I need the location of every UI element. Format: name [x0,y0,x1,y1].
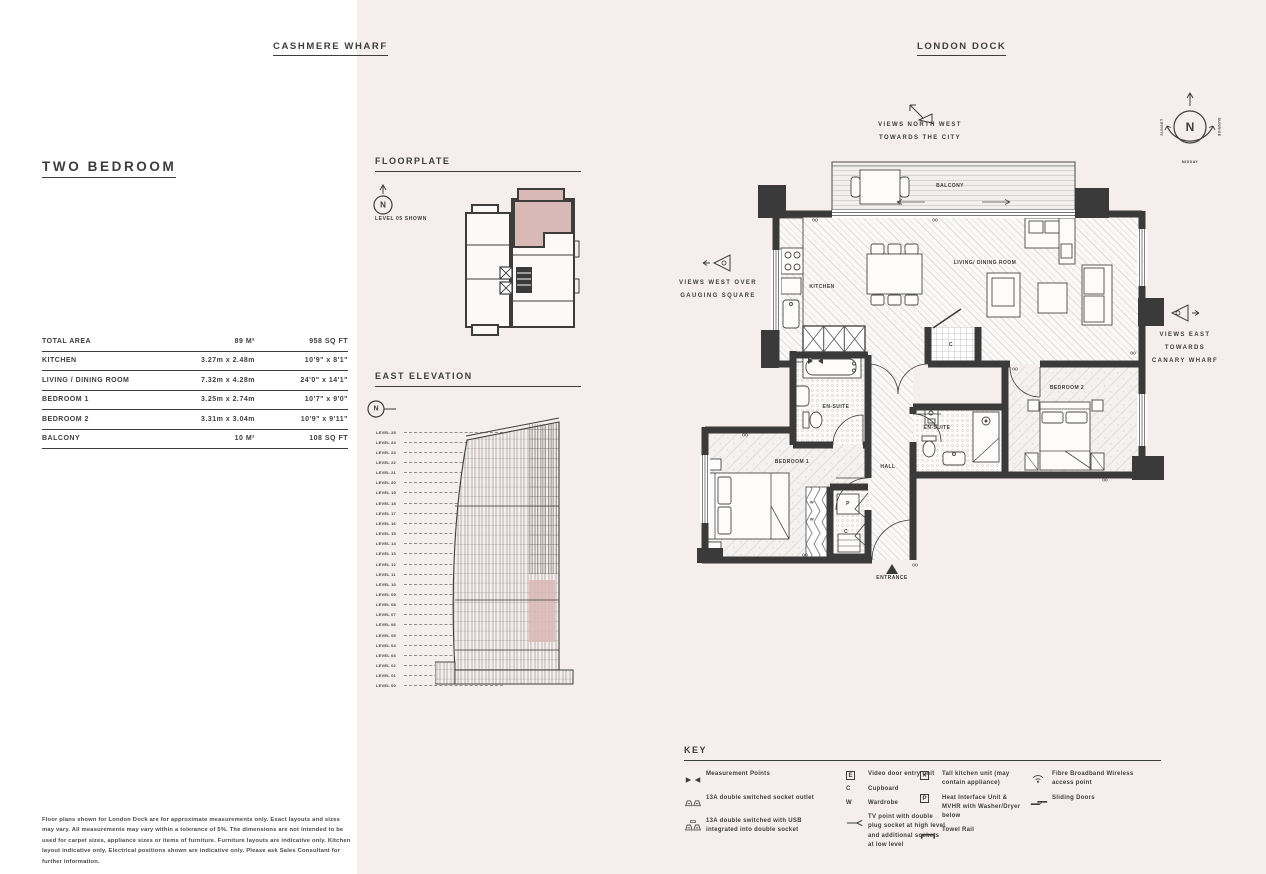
balcony-label: BALCONY [936,183,964,189]
key-item: 13A double switched with USB integrated … [684,817,829,836]
kitchen-window [771,250,781,330]
tall-kitchen-unit-icon: ✕ [920,771,929,780]
room-metric-dims: 3.31m x 3.04m [155,416,255,423]
cupboard-icon: C [846,785,850,794]
key-item: ✕ Tall kitchen unit (may contain applian… [920,770,1028,789]
balcony-chair-left [851,177,860,197]
floorplate-level-note: LEVEL 05 SHOWN [375,216,427,222]
key-item: 13A double switched socket outlet [684,794,829,813]
room-metric-dims: 3.27m x 2.48m [155,357,255,364]
wardrobe-label: W [810,517,814,522]
level-label: LEVEL 08 [376,602,402,607]
disclaimer-text: Floor plans shown for London Dock are fo… [42,815,352,867]
compass-sunrise-label: SUNRISE [1217,117,1221,136]
floorplate-heading: FLOORPLATE [375,156,581,172]
view-west-icon [700,252,734,274]
view-nw-line2: TOWARDS THE CITY [879,135,961,141]
level-label: LEVEL 22 [376,460,402,465]
armchair-cushion [992,278,1014,306]
level-label: LEVEL 16 [376,521,402,526]
room-label: BEDROOM 1 [42,396,155,403]
ensuite2-label: EN-SUITE [924,425,951,431]
balcony-table [860,170,900,204]
elevation-compass-icon [366,399,402,419]
ensuite1-label: EN-SUITE [823,404,850,410]
coffee-table [1038,283,1067,313]
project-header-left: CASHMERE WHARF [273,36,388,56]
room-imperial-dims: 10'7" x 9'0" [255,396,348,403]
room-label: LIVING / DINING ROOM [42,377,155,384]
level-label: LEVEL 13 [376,551,402,556]
total-area-imperial: 958 SQ FT [255,338,348,345]
hall-floor [868,362,913,560]
heat-interface-icon: P [920,794,929,803]
cupboard-label: C [949,342,953,348]
view-east-line3: CANARY WHARF [1152,358,1218,364]
bedroom2-label: BEDROOM 2 [1050,385,1084,391]
heat-unit-label: P [846,501,850,507]
balcony-chair-right [900,177,909,197]
kitchen-label: KITCHEN [809,284,834,290]
area-table-rows: KITCHEN 3.27m x 2.48m 10'9" x 8'1" LIVIN… [42,352,348,450]
level-label: LEVEL 05 [376,633,402,638]
page-title: TWO BEDROOM [42,159,176,178]
view-west-line1: VIEWS WEST OVER [679,280,757,286]
floor-plan-drawing [685,148,1165,593]
washer-dryer [838,534,860,552]
view-nw-line1: VIEWS NORTH WEST [878,122,962,128]
level-label: LEVEL 06 [376,622,402,627]
wardrobe-icon: W [846,799,852,808]
elevation-annex [435,662,455,684]
bath [803,356,861,378]
level-label: LEVEL 19 [376,490,402,495]
room-imperial-dims: 108 SQ FT [255,435,348,442]
key-column-1: Measurement Points 13A double switched s… [684,770,829,841]
key-item: P Heat Interface Unit & MVHR with Washer… [920,794,1028,822]
elevation-dark-cladding [529,424,559,574]
key-column-4: Fibre Broadband Wireless access point Sl… [1030,770,1150,817]
table-row: KITCHEN 3.27m x 2.48m 10'9" x 8'1" [42,352,348,372]
video-entry-icon: E [846,771,855,780]
level-label: LEVEL 21 [376,470,402,475]
level-label: LEVEL 15 [376,531,402,536]
view-east-icon [1168,302,1202,324]
key-item: Fibre Broadband Wireless access point [1030,770,1150,789]
east-elevation-drawing [435,410,575,690]
vanity-unit [925,408,938,425]
bedroom2-window [1137,394,1147,446]
wardrobe-label: W [810,500,814,505]
level-label: LEVEL 24 [376,440,402,445]
living-window [1137,229,1147,286]
tall-kitchen-units [803,326,865,352]
bedroom1-label: BEDROOM 1 [775,459,809,465]
total-area-label: TOTAL AREA [42,338,155,345]
level-label: LEVEL 14 [376,541,402,546]
view-west-line2: GAUGING SQUARE [680,293,756,299]
view-east-line1: VIEWS EAST [1159,332,1210,338]
elevation-unit-highlight [529,580,555,642]
floorplate-diagram [460,183,580,338]
level-label: LEVEL 17 [376,511,402,516]
entrance-label: ENTRANCE [876,575,907,581]
level-label: LEVEL 23 [376,450,402,455]
level-label: LEVEL 07 [376,612,402,617]
compass-midday-label: MIDDAY [1182,160,1198,164]
table-row: BEDROOM 1 3.25m x 2.74m 10'7" x 9'0" [42,391,348,411]
unit-title-wrap: TWO BEDROOM [42,158,176,178]
shower [973,412,999,462]
level-label: LEVEL 00 [376,683,402,688]
level-label: LEVEL 11 [376,572,402,577]
east-elevation-heading: EAST ELEVATION [375,371,581,387]
area-table: TOTAL AREA 89 M² 958 SQ FT KITCHEN 3.27m… [42,332,348,449]
room-label: KITCHEN [42,357,155,364]
bedroom1-window [700,455,710,523]
site-compass-n: N [1186,120,1195,134]
level-label: LEVEL 09 [376,592,402,597]
dining-table-set [867,244,922,305]
room-imperial-dims: 24'0" x 14'1" [255,377,348,384]
tv-point-icon [846,814,864,851]
hall-label: HALL [880,464,895,470]
sofa [1082,265,1112,325]
compass-sunset-label: SUNSET [1160,118,1164,135]
room-imperial-dims: 10'9" x 9'11" [255,416,348,423]
floorplate-stairs [516,267,532,293]
room-label: BEDROOM 2 [42,416,155,423]
towel-rail-icon [920,827,936,845]
view-east-line2: TOWARDS [1165,345,1205,351]
project-header-right: LONDON DOCK [917,36,1006,56]
london-dock-title: LONDON DOCK [917,41,1006,56]
view-north-west-icon [903,100,937,124]
total-area-metric: 89 M² [155,338,255,345]
measurement-points-icon [684,771,702,789]
table-row: LIVING / DINING ROOM 7.32m x 4.28m 24'0"… [42,371,348,391]
entrance-arrow [886,564,898,574]
level-label: LEVEL 02 [376,663,402,668]
bedside-table [1028,400,1039,411]
bedside-table [1092,400,1103,411]
level-label: LEVEL 20 [376,480,402,485]
key-item: Sliding Doors [1030,794,1150,813]
level-label: LEVEL 18 [376,501,402,506]
table-row-total: TOTAL AREA 89 M² 958 SQ FT [42,332,348,352]
room-imperial-dims: 10'9" x 8'1" [255,357,348,364]
balcony-sliding-door [832,210,1075,218]
floorplate-wing-bottom [472,325,498,335]
level-label: LEVEL 10 [376,582,402,587]
level-label: LEVEL 12 [376,562,402,567]
elevation-compass-n: N [373,406,378,413]
table-row: BALCONY 10 M² 108 SQ FT [42,430,348,450]
living-dining-label: LIVING/ DINING ROOM [954,260,1016,266]
room-label: BALCONY [42,435,155,442]
bed1 [708,459,789,553]
room-metric-dims: 3.25m x 2.74m [155,396,255,403]
sliding-doors-icon [1030,794,1048,812]
floorplate-compass-n: N [380,201,386,210]
key-item: Towel Rail [920,826,1028,845]
key-item: Measurement Points [684,770,829,789]
level-label: LEVEL 25 [376,430,402,435]
utility-cupboard-label: C [844,529,848,535]
key-heading: KEY [684,745,1161,761]
level-label: LEVEL 03 [376,653,402,658]
toilet [922,436,936,457]
room-metric-dims: 7.32m x 4.28m [155,377,255,384]
brochure-page: CASHMERE WHARF LONDON DOCK TWO BEDROOM T… [0,0,1266,874]
cashmere-wharf-title: CASHMERE WHARF [273,41,388,56]
room-metric-dims: 10 M² [155,435,255,442]
double-socket-icon [684,794,702,812]
wardrobe-floor [806,487,830,557]
elevation-podium [439,670,573,684]
key-column-3: ✕ Tall kitchen unit (may contain applian… [920,770,1028,850]
usb-socket-icon [684,818,702,836]
toilet [803,412,822,428]
level-label: LEVEL 04 [376,643,402,648]
table-row: BEDROOM 2 3.31m x 3.04m 10'9" x 9'11" [42,410,348,430]
wifi-icon [1030,771,1046,789]
level-label: LEVEL 01 [376,673,402,678]
